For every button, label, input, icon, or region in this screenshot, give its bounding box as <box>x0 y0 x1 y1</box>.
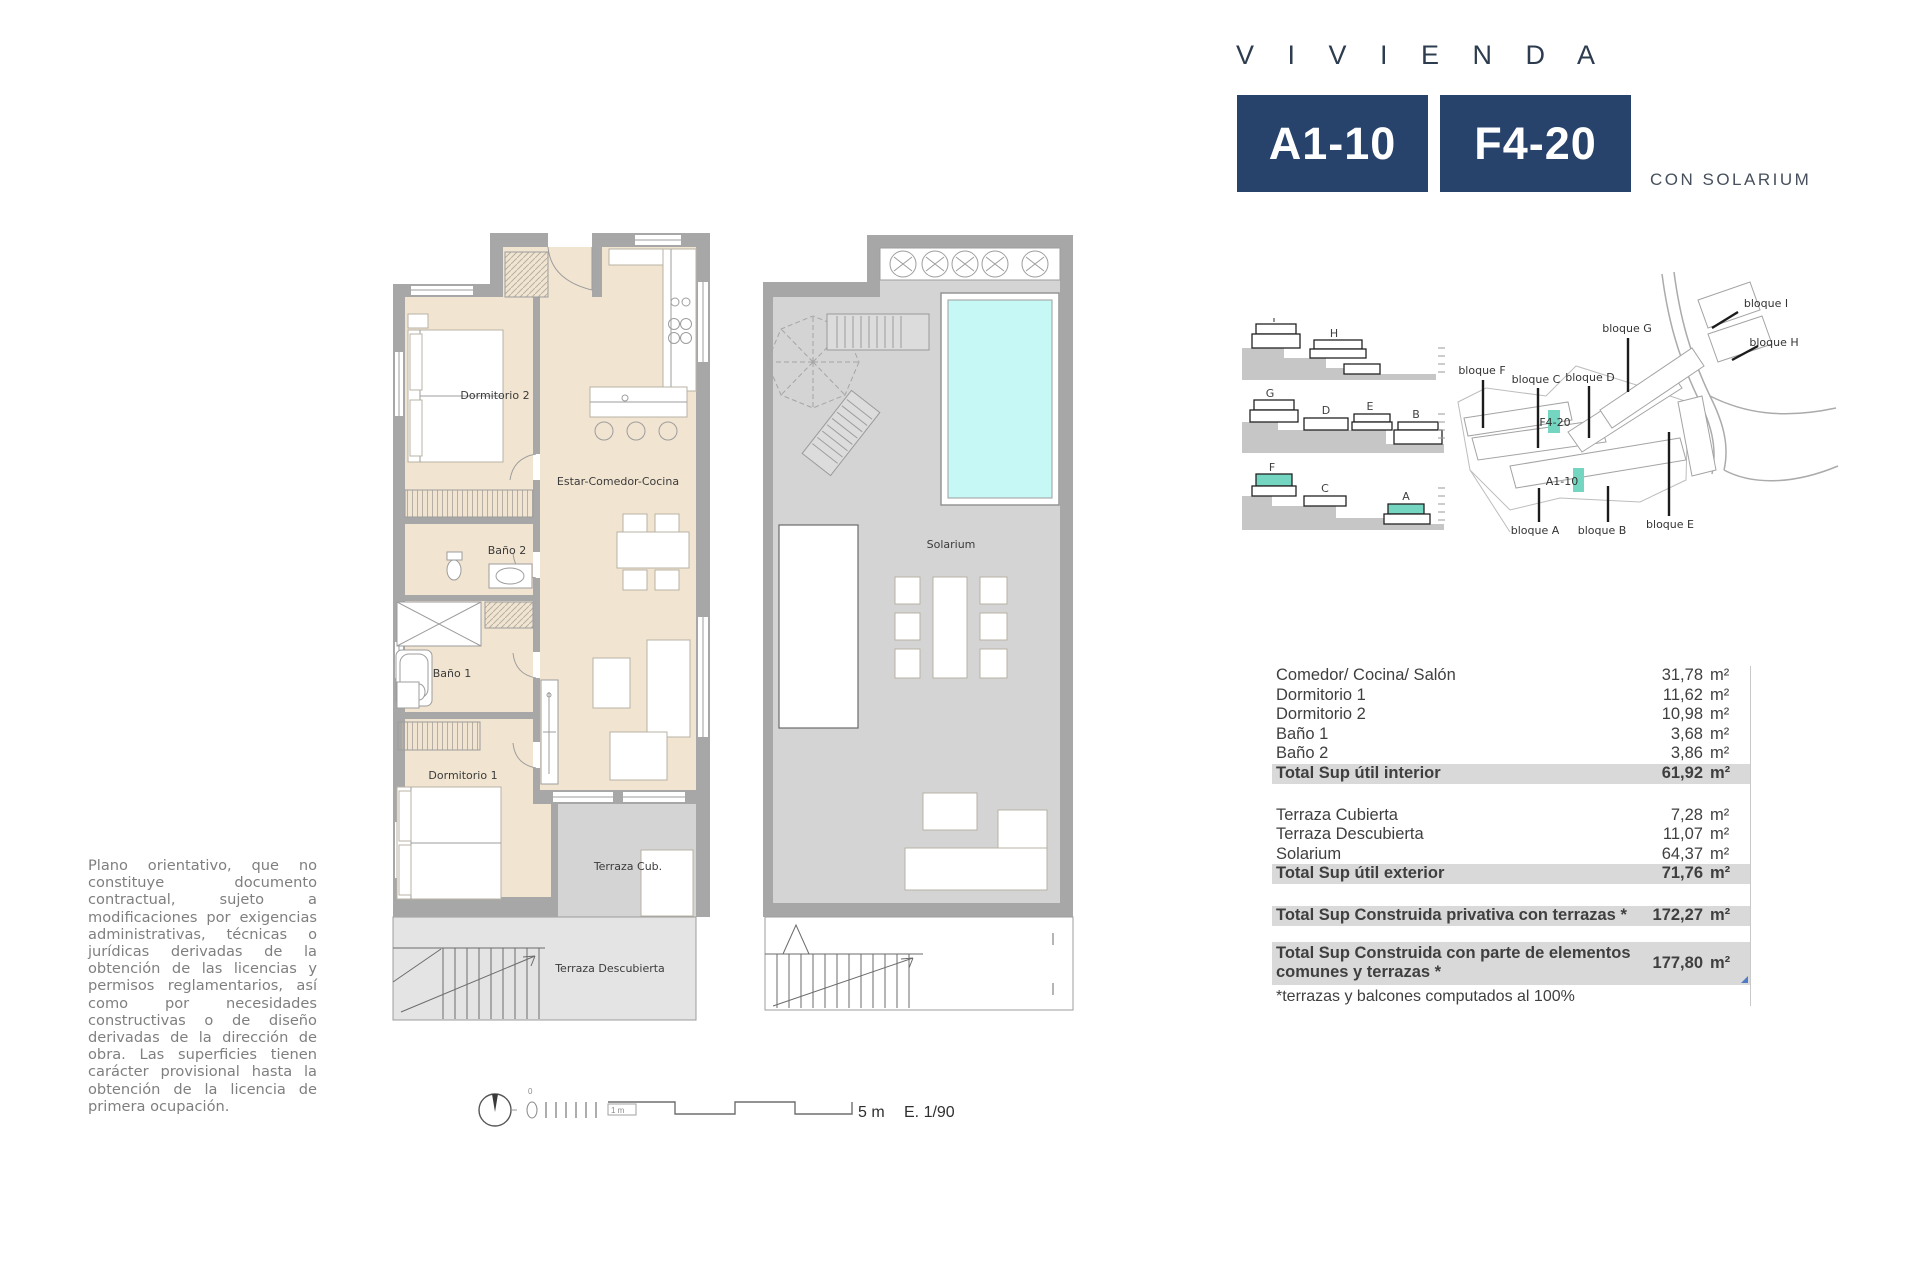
row-unit: m² <box>1703 806 1750 825</box>
row-label: Total Sup útil exterior <box>1276 864 1645 883</box>
section-label-h: H <box>1330 327 1338 340</box>
plan-sheet: V I V I E N D A A1-10 F4-20 CON SOLARIUM <box>0 0 1920 1280</box>
zero-label: 0 <box>528 1087 533 1096</box>
page-title: V I V I E N D A <box>1236 40 1608 71</box>
row-unit: m² <box>1703 825 1750 844</box>
row-unit: m² <box>1703 764 1750 783</box>
section-label-b: B <box>1412 408 1420 421</box>
unit-badge-primary: A1-10 <box>1237 95 1428 192</box>
row-value: 3,86 <box>1645 744 1703 763</box>
label-bano-2: Baño 2 <box>488 544 526 557</box>
site-map: bloque F bloque C bloque G bloque D bloq… <box>1450 270 1840 570</box>
table-footnote: *terrazas y balcones computados al 100% <box>1272 988 1750 1006</box>
label-solarium: Solarium <box>927 538 976 551</box>
section-label-d: D <box>1322 404 1330 417</box>
five-meter-label: 5 m <box>858 1104 885 1121</box>
row-unit: m² <box>1703 744 1750 763</box>
unit-primary-label: A1-10 <box>1269 118 1397 170</box>
unit-badge-secondary: F4-20 <box>1440 95 1631 192</box>
row-label: Terraza Cubierta <box>1276 806 1645 825</box>
row-label: Total Sup Construida con parte de elemen… <box>1276 942 1645 985</box>
label-bloque-a: bloque A <box>1511 524 1560 537</box>
row-value: 64,37 <box>1645 845 1703 864</box>
row-label: Terraza Descubierta <box>1276 825 1645 844</box>
label-unit-a1-10: A1-10 <box>1546 475 1579 488</box>
apartment-floor-plan: Dormitorio 2 Estar-Comedor-Cocina Baño 2… <box>385 222 720 1027</box>
table-row: Dormitorio 1 11,62 m² <box>1272 686 1750 706</box>
row-unit: m² <box>1703 845 1750 864</box>
comment-marker-icon <box>1741 976 1748 983</box>
section-label-g: G <box>1266 387 1275 400</box>
solarium-dining-set <box>895 577 1007 678</box>
row-label: Baño 1 <box>1276 725 1645 744</box>
section-row-1: I H <box>1242 318 1445 380</box>
solarium-lower-terrace <box>765 917 1073 1010</box>
scale-bar-line <box>608 1102 852 1114</box>
row-value: 10,98 <box>1645 705 1703 724</box>
row-label: Dormitorio 2 <box>1276 705 1645 724</box>
disclaimer-text: Plano orientativo, que no constituye doc… <box>88 857 317 1115</box>
label-bloque-e: bloque E <box>1646 518 1694 531</box>
label-dormitorio-2: Dormitorio 2 <box>460 389 529 402</box>
row-label: Total Sup Construida privativa con terra… <box>1276 906 1645 925</box>
planter-trees <box>880 248 1060 280</box>
label-bloque-h: bloque H <box>1749 336 1798 349</box>
pool <box>941 293 1059 505</box>
table-row: Terraza Descubierta 11,07 m² <box>1272 825 1750 845</box>
row-unit: m² <box>1703 666 1750 685</box>
row-label: Baño 2 <box>1276 744 1645 763</box>
table-row: Dormitorio 2 10,98 m² <box>1272 705 1750 725</box>
section-diagrams: I H G D E B F C A <box>1240 318 1450 533</box>
label-bloque-c: bloque C <box>1512 373 1561 386</box>
row-unit: m² <box>1703 864 1750 883</box>
north-arrow-icon <box>479 1094 517 1126</box>
row-label: Solarium <box>1276 845 1645 864</box>
row-label: Dormitorio 1 <box>1276 686 1645 705</box>
section-label-i: I <box>1272 318 1275 325</box>
solarium-floor-plan: Solarium <box>763 228 1083 1028</box>
label-bloque-i: bloque I <box>1744 297 1788 310</box>
subtitle-con-solarium: CON SOLARIUM <box>1650 170 1811 190</box>
table-total-interior: Total Sup útil interior 61,92 m² <box>1272 764 1750 784</box>
row-value: 177,80 <box>1645 954 1703 973</box>
table-row: Baño 2 3,86 m² <box>1272 744 1750 764</box>
row-unit: m² <box>1703 725 1750 744</box>
table-row: Solarium 64,37 m² <box>1272 845 1750 865</box>
section-label-a: A <box>1402 490 1410 503</box>
label-bloque-f: bloque F <box>1458 364 1505 377</box>
row-label: Comedor/ Cocina/ Salón <box>1276 666 1645 685</box>
table-total-exterior: Total Sup útil exterior 71,76 m² <box>1272 864 1750 884</box>
row-label: Total Sup útil interior <box>1276 764 1645 783</box>
section-row-2: G D E B <box>1242 387 1445 453</box>
section-label-c: C <box>1321 482 1329 495</box>
unit-secondary-label: F4-20 <box>1474 118 1597 170</box>
label-bloque-g: bloque G <box>1602 322 1652 335</box>
row-value: 11,07 <box>1645 825 1703 844</box>
bed-dormitorio-1 <box>397 787 501 899</box>
scale-bar: 1 m 0 5 m E. 1/90 <box>460 1080 980 1140</box>
row-unit: m² <box>1703 954 1750 973</box>
section-label-f: F <box>1269 461 1275 474</box>
label-unit-f4-20: F4-20 <box>1539 416 1570 429</box>
one-meter-label: 1 m <box>611 1106 625 1115</box>
areas-table: Comedor/ Cocina/ Salón 31,78 m² Dormitor… <box>1272 666 1751 1006</box>
table-total-built-common: Total Sup Construida con parte de elemen… <box>1272 942 1750 985</box>
bathroom-1-fixtures <box>396 650 432 708</box>
row-unit: m² <box>1703 686 1750 705</box>
table-row: Comedor/ Cocina/ Salón 31,78 m² <box>1272 666 1750 686</box>
row-value: 172,27 <box>1645 906 1703 925</box>
label-bloque-d: bloque D <box>1565 371 1614 384</box>
section-row-3: F C A <box>1242 461 1445 530</box>
label-dormitorio-1: Dormitorio 1 <box>428 769 497 782</box>
label-terraza-cub: Terraza Cub. <box>593 860 662 873</box>
shower <box>397 602 481 646</box>
label-estar-comedor-cocina: Estar-Comedor-Cocina <box>557 475 679 488</box>
label-bloque-b: bloque B <box>1578 524 1627 537</box>
label-bano-1: Baño 1 <box>433 667 471 680</box>
table-row: Baño 1 3,68 m² <box>1272 725 1750 745</box>
scale-ratio-label: E. 1/90 <box>904 1104 955 1121</box>
stairwell-opening <box>779 525 858 728</box>
label-terraza-descubierta: Terraza Descubierta <box>554 962 665 975</box>
row-value: 3,68 <box>1645 725 1703 744</box>
section-label-e: E <box>1367 400 1374 413</box>
bed-dormitorio-2 <box>408 314 503 462</box>
row-unit: m² <box>1703 705 1750 724</box>
row-value: 31,78 <box>1645 666 1703 685</box>
row-value: 61,92 <box>1645 764 1703 783</box>
table-row: Terraza Cubierta 7,28 m² <box>1272 806 1750 826</box>
row-unit: m² <box>1703 906 1750 925</box>
row-value: 11,62 <box>1645 686 1703 705</box>
row-value: 71,76 <box>1645 864 1703 883</box>
row-value: 7,28 <box>1645 806 1703 825</box>
table-total-built-private: Total Sup Construida privativa con terra… <box>1272 906 1750 926</box>
hall-closet <box>541 680 558 784</box>
